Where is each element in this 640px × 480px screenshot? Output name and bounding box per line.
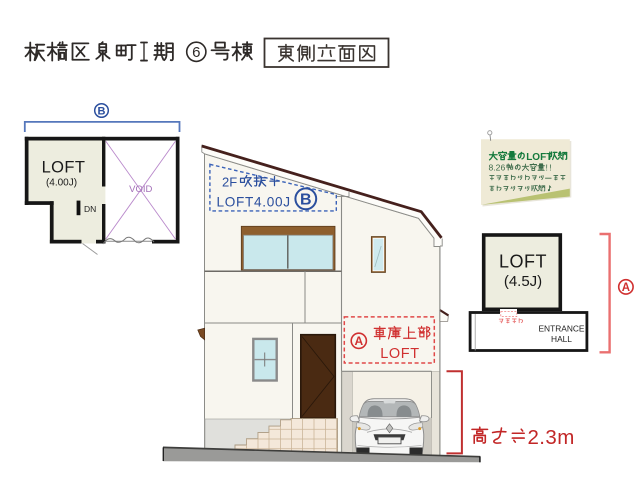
svg-text:(4.00J): (4.00J) xyxy=(46,177,77,188)
svg-text:DN: DN xyxy=(84,204,96,214)
svg-text:(4.5J): (4.5J) xyxy=(504,273,542,290)
svg-text:LOFT4.00J: LOFT4.00J xyxy=(217,194,291,209)
svg-text:2F: 2F xyxy=(222,174,237,189)
svg-text:LOFT: LOFT xyxy=(380,346,419,362)
svg-text:2.3m: 2.3m xyxy=(528,426,575,449)
svg-text:B: B xyxy=(98,106,106,118)
svg-text:LOFT: LOFT xyxy=(499,252,547,272)
svg-text:A: A xyxy=(354,334,363,348)
svg-text:LOFT: LOFT xyxy=(42,159,86,177)
svg-text:ENTRANCE: ENTRANCE xyxy=(538,324,584,334)
svg-text:LOFT: LOFT xyxy=(526,152,552,163)
svg-text:!!: !! xyxy=(546,163,554,173)
svg-text:A: A xyxy=(622,282,630,294)
svg-text:6: 6 xyxy=(192,44,200,61)
svg-text:8.26: 8.26 xyxy=(489,163,506,173)
svg-text:B: B xyxy=(300,192,312,209)
svg-text:VOID: VOID xyxy=(129,184,152,195)
svg-text:HALL: HALL xyxy=(551,334,572,344)
